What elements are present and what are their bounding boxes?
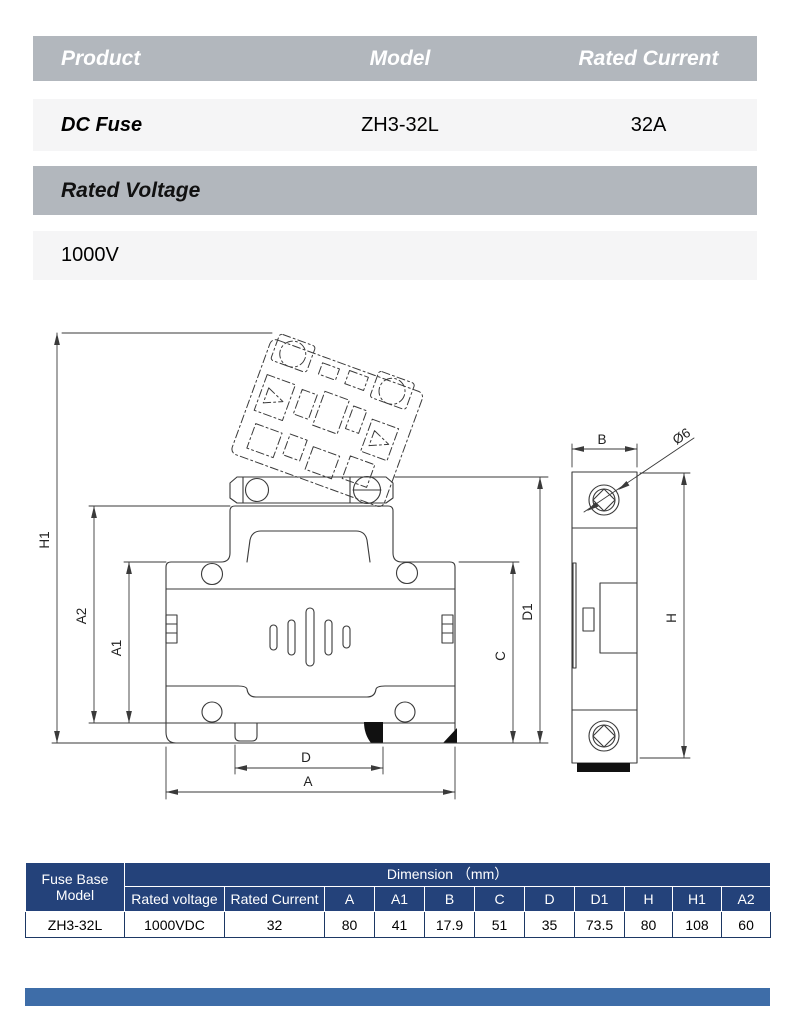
product-value: DC Fuse [33, 114, 260, 137]
rated-voltage-row: 1000V [33, 231, 757, 280]
rail-latch-tab [235, 723, 257, 741]
col-h: H [625, 887, 673, 912]
side-button [583, 608, 594, 631]
terminal-left-hole [246, 479, 269, 502]
rated-voltage-section-header: Rated Voltage [33, 166, 757, 215]
rated-current-value: 32A [540, 114, 757, 137]
dimension-drawing: H1 A2 A1 D A C [0, 300, 790, 860]
mounting-hole [202, 564, 223, 585]
col-a1: A1 [375, 887, 425, 912]
spec-table-header: Product Model Rated Current [33, 36, 757, 81]
col-d: D [525, 887, 575, 912]
vent-slots [270, 608, 350, 666]
col-rated-voltage: Rated voltage [125, 887, 225, 912]
mounting-hole [397, 563, 418, 584]
fuse-carrier-phantom-view [230, 331, 426, 508]
col-h1: H1 [673, 887, 722, 912]
dim-label-c: C [493, 651, 508, 661]
col-rated-current: Rated Current [225, 887, 325, 912]
dim-label-b: B [597, 432, 606, 447]
model-value: ZH3-32L [260, 114, 540, 137]
inner-bottom-contour [166, 686, 455, 697]
rail-clip-black [364, 722, 383, 743]
side-body-outline [572, 472, 637, 763]
carrier-outline [230, 338, 424, 508]
dimension-mm-header: Dimension （mm） [125, 863, 771, 887]
col-d1: D1 [575, 887, 625, 912]
top-screw [589, 485, 619, 515]
cell-c: 51 [475, 912, 525, 938]
dim-label-h: H [664, 613, 679, 623]
rail-foot-pad [577, 763, 630, 772]
cell-h: 80 [625, 912, 673, 938]
right-side-tab [442, 615, 453, 643]
cell-b: 17.9 [425, 912, 475, 938]
rated-voltage-label: Rated Voltage [33, 179, 260, 203]
cell-d: 35 [525, 912, 575, 938]
side-window [600, 583, 637, 653]
mounting-hole [202, 702, 222, 722]
dim-label-diameter: Ø6 [670, 425, 693, 448]
rated-current-column-header: Rated Current [540, 47, 757, 71]
product-column-header: Product [33, 47, 260, 71]
cell-a2: 60 [722, 912, 771, 938]
cell-a: 80 [325, 912, 375, 938]
bottom-screw [589, 721, 619, 751]
cell-d1: 73.5 [575, 912, 625, 938]
cell-a1: 41 [375, 912, 425, 938]
dimension-table-row: ZH3-32L 1000VDC 32 80 41 17.9 51 35 73.5… [26, 912, 771, 938]
inner-top-contour [247, 531, 370, 562]
spec-sheet-page: Product Model Rated Current DC Fuse ZH3-… [0, 0, 790, 1010]
dim-label-d: D [301, 750, 311, 765]
dim-label-a1: A1 [109, 640, 124, 657]
cell-rated-current: 32 [225, 912, 325, 938]
dim-label-d1: D1 [520, 603, 535, 620]
mounting-hole [395, 702, 415, 722]
footer-accent-bar [25, 988, 770, 1006]
carrier-right-lug [370, 371, 415, 410]
col-c: C [475, 887, 525, 912]
col-b: B [425, 887, 475, 912]
base-body-outline [166, 506, 455, 743]
dim-label-a2: A2 [74, 608, 89, 625]
dimension-table: Fuse Base Model Dimension （mm） Rated vol… [25, 862, 771, 938]
cell-rated-voltage: 1000VDC [125, 912, 225, 938]
spec-table-row: DC Fuse ZH3-32L 32A [33, 99, 757, 151]
carrier-left-lug [270, 333, 315, 372]
dim-label-a: A [303, 774, 312, 789]
dim-label-h1: H1 [37, 531, 52, 548]
cell-model: ZH3-32L [26, 912, 125, 938]
col-a2: A2 [722, 887, 771, 912]
cell-h1: 108 [673, 912, 722, 938]
fuse-base-side-view [572, 472, 637, 772]
model-column-header: Model [260, 47, 540, 71]
rated-voltage-value: 1000V [33, 244, 260, 267]
side-recess [573, 563, 576, 668]
fuse-base-front-view [166, 477, 457, 744]
left-side-tab [166, 615, 177, 643]
col-a: A [325, 887, 375, 912]
fuse-base-model-header: Fuse Base Model [26, 863, 125, 912]
